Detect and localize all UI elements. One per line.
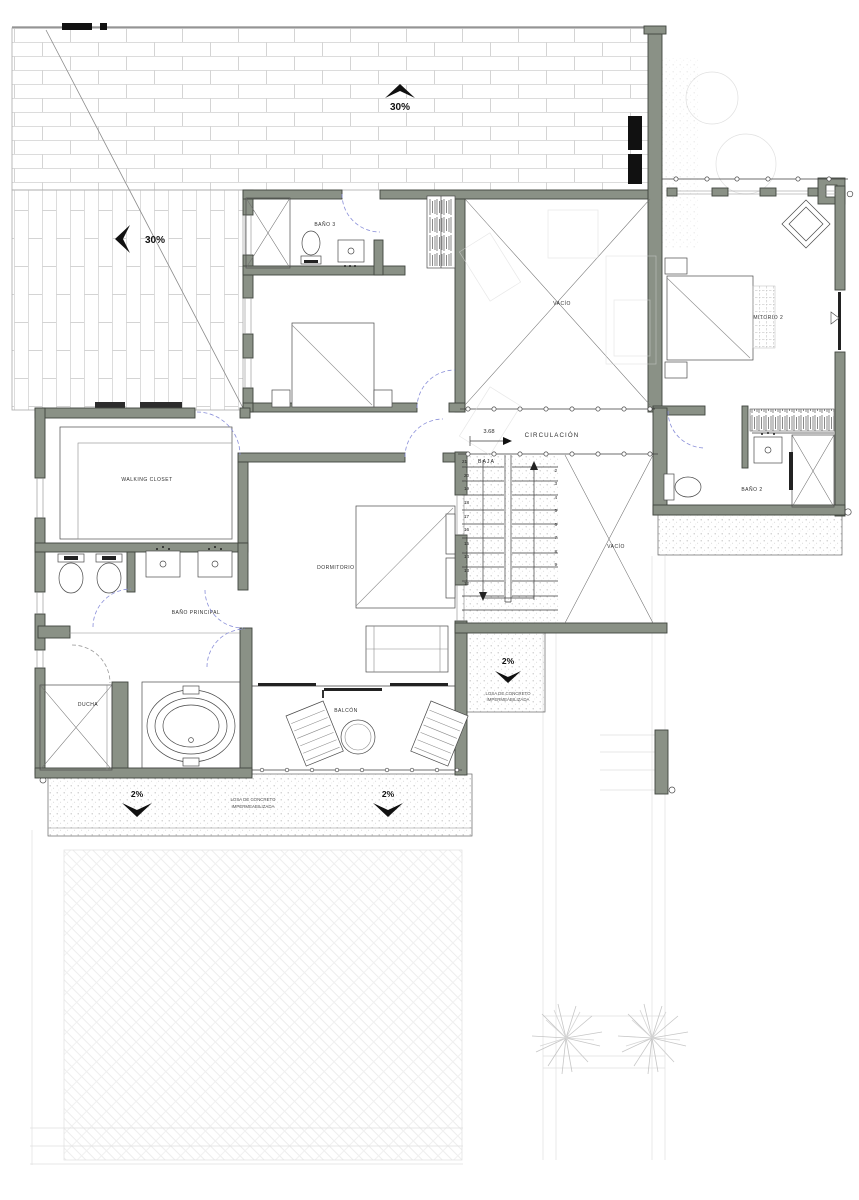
wall [240,628,252,775]
wall [243,255,253,298]
wall [112,682,128,773]
nightstand [665,258,687,274]
tub-drain [189,738,194,743]
wall [760,188,776,196]
walking-closet: WALKING CLOSET [60,427,232,539]
room-label: BAÑO PRINCIPAL [172,609,221,616]
closet-millwork-outer [60,427,232,539]
room-label: WALKING CLOSET [121,477,172,483]
wall [712,188,728,196]
tub-headrest [183,758,199,766]
wall [455,199,465,412]
pillow [446,514,455,554]
slope-label: 2% [502,656,515,666]
wall [243,334,253,358]
void-label: VACÍO [607,543,625,550]
dormitorio3: DORMITORIO 3 [272,323,392,407]
roof-vent [628,116,642,150]
room-label: BAÑO 2 [741,486,762,493]
wall [380,190,655,199]
door-arc-wc [93,589,131,627]
wall [243,190,342,199]
wall [835,186,845,290]
wall [808,188,818,196]
terrace-bano2 [658,515,842,555]
slab-note-line1: LOSA DE CONCRETO [230,797,276,802]
wall [35,518,45,592]
bed [667,276,753,360]
svg-text:4: 4 [554,495,557,500]
wall-pier [655,730,668,794]
door-arc-dorm3 [417,370,455,408]
slab-note-line2: IMPERMEABILIZADA [487,697,530,702]
roof-brick-vertical [12,190,243,410]
circulation-dimension: 3.68 [483,429,494,435]
staircase: 21 BAJA 20 19 18 17 16 15 14 13 12 2 3 4… [460,455,560,625]
ghost-paving-2 [64,850,462,1160]
wall [238,462,248,543]
wall [35,408,195,418]
stair-numbers-left: 20 19 18 17 16 15 14 13 12 [464,473,470,586]
svg-text:12: 12 [464,581,470,586]
door-arc-dorm-principal [405,419,443,457]
svg-text:8: 8 [554,549,557,554]
ghost-shrub [716,134,776,194]
dimension-line [470,436,503,446]
wall [238,453,405,462]
sink-icon [338,240,364,262]
room-label: BALCÓN [334,707,358,714]
wall [653,505,845,515]
door-arc-bano3 [342,194,380,232]
void-label: VACÍO [553,300,571,307]
shower-cross [792,435,834,507]
svg-text:5: 5 [554,508,557,513]
svg-text:16: 16 [464,527,470,532]
door-swing-marker [831,312,839,324]
bano3: BAÑO 3 [246,196,455,268]
svg-text:19: 19 [464,486,470,491]
svg-text:6: 6 [554,522,557,527]
sink-icon [198,551,232,577]
closet-hanging-clothes [750,409,834,431]
floor-plan-drawing: 30% 30% 2% 2% LOSA DE CONCRETO IMPERMEAB… [0,0,859,1200]
ghost-planting-strip [662,58,698,248]
wall [742,406,748,468]
bed-runner [753,286,775,348]
door-leaf [324,688,382,691]
void-cross [565,455,653,623]
wall [667,188,677,196]
door-arc-ducha [72,645,110,683]
svg-text:3: 3 [554,481,557,486]
roof-brick-horizontal [12,28,655,190]
wall [449,403,465,412]
slab-note-line1: LOSA DE CONCRETO [485,691,531,696]
circulation: CIRCULACIÓN 3.68 [470,429,579,446]
toilet-seat [304,260,318,263]
stair-texture [460,455,560,625]
wall [455,621,467,775]
wall [35,408,45,478]
dimension-arrow [503,437,512,445]
palm-tree-icon [532,1004,602,1074]
roof-slope-top-label: 30% [390,102,410,113]
nightstand [374,390,392,407]
door-pull [322,690,324,698]
wall [238,543,248,590]
tub-mid [155,698,227,754]
wall-cap [644,26,666,34]
svg-text:7: 7 [554,535,557,540]
tub-outer [147,690,235,762]
stair-step-number: 21 [462,459,468,464]
ducha-tub-zone: DUCHA [40,682,240,770]
ghost-walls-vertical [543,556,665,1160]
roof-edge-marker [62,23,92,30]
door-arc-walking-closet [197,412,240,455]
toilet-icon [59,563,83,593]
closet-millwork-inner [78,443,232,539]
slab-note-line2: IMPERMEABILIZADA [232,804,275,809]
svg-text:14: 14 [464,554,470,559]
room-label: BAÑO 3 [314,221,335,228]
toilet-seat [64,556,78,560]
column-marker [847,191,853,197]
roof-edge-vent [140,402,182,408]
pier-marker [669,787,675,793]
toilet-icon [675,477,701,497]
nightstand [665,362,687,378]
svg-text:9: 9 [554,562,557,567]
door-leaf [258,683,316,686]
toilet-tank [664,474,674,500]
door-arc-bano-principal [205,590,243,628]
roof-edge-marker [100,23,107,30]
door-arc-tub-room [207,629,245,667]
toilet-icon [302,231,320,255]
svg-text:18: 18 [464,500,470,505]
sink-icon [754,437,782,463]
round-table [341,720,375,754]
wall [240,408,250,418]
circulation-label: CIRCULACIÓN [525,432,580,439]
wall [38,626,70,638]
dormitorio-principal: DORMITORIO PRINCIPAL [317,506,455,672]
palm-tree-icon [618,1004,688,1074]
bano2: BAÑO 2 [664,409,834,507]
shower-cross [40,685,112,770]
door-leaf [838,292,841,350]
round-table-inner [345,724,371,750]
room-label: DUCHA [78,702,98,708]
wall [35,768,252,778]
tub-inner [163,705,219,747]
pillow [446,558,455,598]
bidet-icon [97,563,121,593]
door-leaf [390,683,448,686]
svg-text:2: 2 [554,468,557,473]
column-marker [845,509,851,515]
roof-slope-left-label: 30% [145,235,165,246]
slope-label: 2% [382,789,395,799]
shower-cross [246,198,290,268]
balcon: BALCÓN [286,701,468,766]
svg-text:15: 15 [464,541,470,546]
wall [835,352,845,516]
nightstand [272,390,290,407]
svg-text:17: 17 [464,514,470,519]
svg-text:13: 13 [464,568,470,573]
tub-headrest [183,686,199,694]
stair-direction-label: BAJA [478,459,495,465]
wall [374,240,383,275]
bidet-seat [102,556,116,560]
tub-deck [142,682,240,768]
slope-label: 2% [131,789,144,799]
ghost-furniture-below [459,210,656,455]
roof-vent [628,154,642,184]
shower-door [789,452,793,490]
sink-icon [146,551,180,577]
bano-principal: BAÑO PRINCIPAL [58,546,232,616]
door-arc-bano2 [668,411,705,448]
wall [443,453,455,462]
svg-text:20: 20 [464,473,470,478]
wall [127,552,135,592]
floor-plan-page: 30% 30% 2% 2% LOSA DE CONCRETO IMPERMEAB… [0,0,859,1200]
